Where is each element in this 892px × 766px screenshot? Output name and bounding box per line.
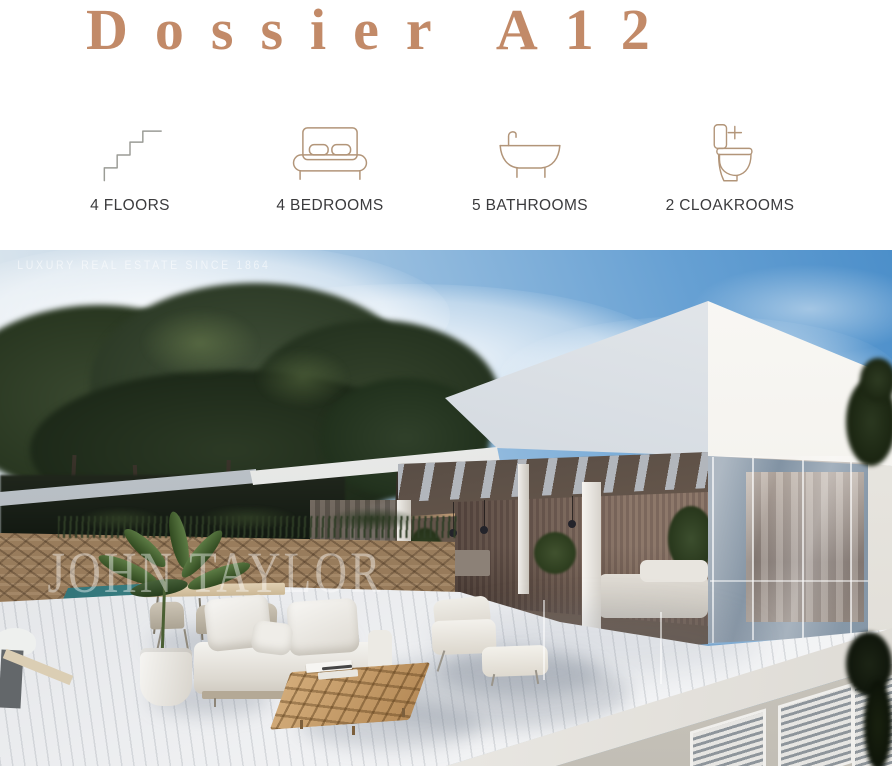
grass-clump <box>330 508 415 530</box>
dossier-page: Dossier A12 4 FLOORS 4 BEDROOMS <box>0 0 892 766</box>
pendant-cord <box>572 496 573 521</box>
glass-mullion <box>802 460 804 638</box>
grass-clump <box>200 506 295 530</box>
sofa-leg <box>214 698 216 707</box>
foliage-bottom-right <box>864 680 892 766</box>
stairs-icon <box>97 118 163 184</box>
page-title: Dossier A12 <box>86 0 677 63</box>
glass-mullion <box>752 458 754 640</box>
tree-canopy-highlight <box>140 308 260 378</box>
bed-icon <box>287 118 373 184</box>
feature-bathrooms: 5 BATHROOMS <box>440 118 620 215</box>
glass-mullion <box>712 457 714 643</box>
dining-chair <box>150 601 185 629</box>
pendant-cord <box>484 500 485 527</box>
pendant-light <box>480 526 488 534</box>
feature-cloakrooms-label: 2 CLOAKROOMS <box>666 197 795 215</box>
sofa-pillow <box>286 598 360 657</box>
feature-floors-label: 4 FLOORS <box>90 197 170 215</box>
glass-railing-edge <box>543 600 545 680</box>
villa-photo: JOHN TAYLOR LUXURY REAL ESTATE SINCE 186… <box>0 250 892 766</box>
plant-pot <box>140 648 192 706</box>
glass-railing-edge <box>660 612 662 684</box>
glass-mullion <box>850 462 852 636</box>
sofa-pillow <box>250 620 294 657</box>
feature-cloakrooms: 2 CLOAKROOMS <box>640 118 820 215</box>
interior-sofa-back <box>640 560 708 582</box>
toilet-icon <box>702 118 758 184</box>
pendant-light <box>568 520 576 528</box>
ottoman <box>481 645 548 677</box>
grass-clump <box>80 508 160 530</box>
watermark-brand: JOHN TAYLOR <box>47 544 383 602</box>
tree-right <box>860 358 892 402</box>
coffee-table-leg <box>402 708 405 717</box>
glass-railing <box>710 580 868 582</box>
tree-canopy-highlight <box>255 348 350 408</box>
feature-bedrooms: 4 BEDROOMS <box>240 118 420 215</box>
coffee-table-leg <box>352 726 355 735</box>
feature-floors: 4 FLOORS <box>40 118 220 215</box>
column <box>518 464 529 594</box>
bathtub-icon <box>489 118 571 184</box>
feature-row: 4 FLOORS 4 BEDROOMS <box>40 118 820 215</box>
interior-plant <box>534 532 576 574</box>
coffee-table-leg <box>300 720 303 729</box>
feature-bathrooms-label: 5 BATHROOMS <box>472 197 588 215</box>
glass-sheen <box>708 456 868 644</box>
watermark-tagline: LUXURY REAL ESTATE SINCE 1864 <box>17 258 270 272</box>
feature-bedrooms-label: 4 BEDROOMS <box>276 197 383 215</box>
